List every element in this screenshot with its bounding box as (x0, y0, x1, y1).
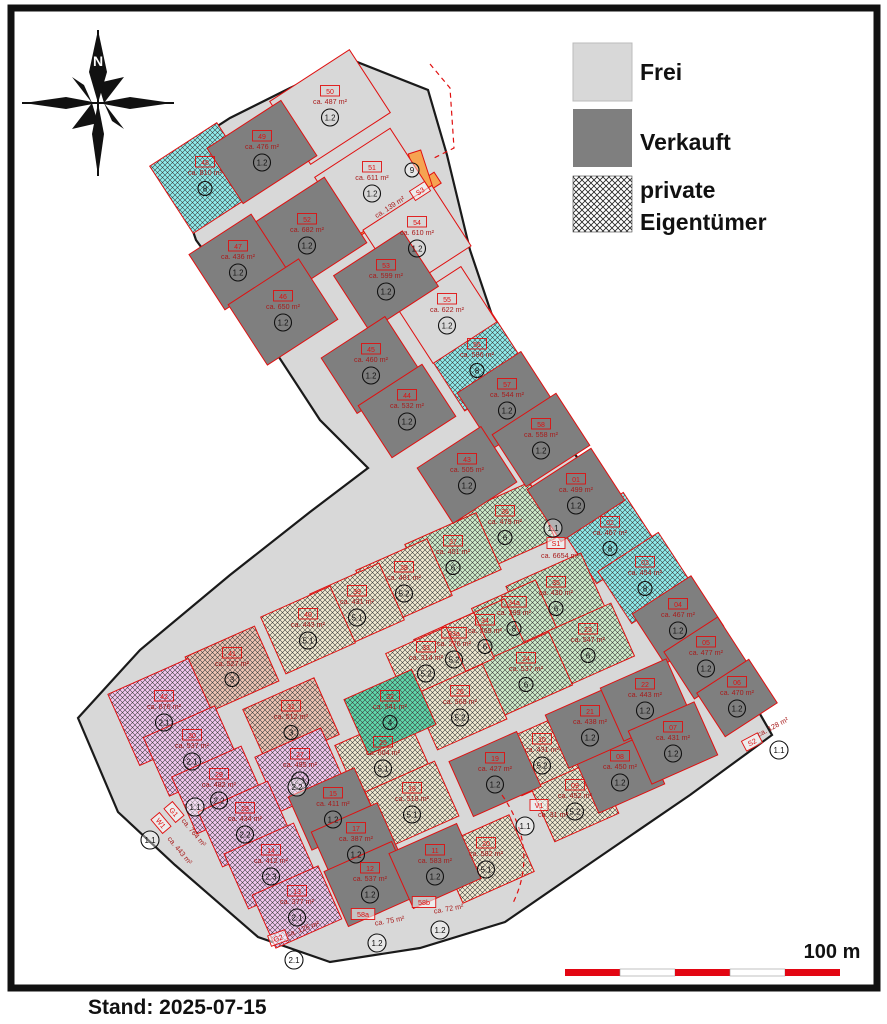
plot-number: 28 (241, 806, 249, 813)
plot-area: ca. 438 m² (573, 717, 608, 726)
zone-marker-2.2-6: 2.2 (288, 778, 306, 796)
plot-area: ca. 568 m² (443, 697, 478, 706)
plot-value: 2.1 (292, 913, 303, 922)
legend-frei-swatch (573, 43, 632, 101)
plot-value: 1.2 (328, 815, 339, 824)
plot-area: ca. 479 m² (488, 517, 523, 526)
plot-value: 1.2 (673, 626, 684, 635)
plot-number: 26 (456, 689, 464, 696)
plot-value: 5.1 (352, 613, 363, 622)
zone-marker-1.1-3: 1.1 (770, 741, 788, 759)
plot-area: ca. 537 m² (175, 741, 210, 750)
plot-number: 17 (352, 826, 360, 833)
plot-number: 33a (448, 631, 460, 638)
plot-area: ca. 682 m² (290, 225, 325, 234)
plot-area: ca. 431 m² (340, 597, 375, 606)
plot-area: ca. 610 m² (400, 228, 435, 237)
plot-number: 20 (482, 841, 490, 848)
plot-number: 58 (537, 422, 545, 429)
plot-value: 1.2 (640, 706, 651, 715)
legend-private-label-1: private (640, 177, 715, 203)
plot-value: 5.1 (481, 865, 492, 874)
plot-area: ca. 450 m² (603, 762, 638, 771)
plot-area: ca. 499 m² (559, 485, 594, 494)
plot-area: ca. 412 m² (254, 856, 289, 865)
plot-value: 6 (554, 604, 558, 613)
plot-value: 1.2 (462, 481, 473, 490)
plot-value: 1.2 (278, 318, 289, 327)
compass-north-label: N (93, 53, 103, 69)
zone-marker-value: 2.1 (288, 956, 300, 965)
zone-marker-1.2-8: 1.2 (368, 934, 386, 952)
plot-area: ca. 505 m² (450, 465, 485, 474)
special-label-id: 58a (357, 910, 369, 919)
plot-value: 1.2 (365, 890, 376, 899)
plot-area: ca. 876 m² (147, 702, 182, 711)
plot-value: 1.2 (615, 778, 626, 787)
legend: Frei Verkauft private Eigentümer (573, 43, 767, 235)
plot-value: 8 (203, 184, 207, 193)
plot-value: 2.2 (240, 830, 251, 839)
legend-verkauft-label: Verkauft (640, 129, 731, 155)
plot-area: ca. 583 m² (418, 856, 453, 865)
plot-number: 14 (267, 848, 275, 855)
plot-value: 5.2 (570, 807, 581, 816)
plot-value: 5.2 (537, 761, 548, 770)
plot-number: 42 (160, 694, 168, 701)
plot-value: 6 (483, 642, 487, 651)
plot-area: ca. 436 m² (221, 252, 256, 261)
plot-value: 5.1 (407, 810, 418, 819)
zone-marker-value: 1.1 (189, 803, 201, 812)
plot-area: ca. 460 m² (354, 355, 389, 364)
plot-area: ca. 476 m² (245, 142, 280, 151)
plot-number: 23 (584, 627, 592, 634)
scale-bar-segment-4 (785, 969, 840, 976)
plot-number: 22 (641, 682, 649, 689)
plot-value: 5.2 (399, 589, 410, 598)
plot-value: 1.2 (536, 446, 547, 455)
plot-value: 5.2 (421, 669, 432, 678)
plot-value: 1.2 (366, 371, 377, 380)
plot-area: ca. 611 m² (355, 173, 389, 182)
scale-bar-label: 100 m (804, 941, 861, 963)
plot-value: 1.2 (257, 158, 268, 167)
plot-value: 2.1 (159, 718, 170, 727)
plot-value: 5.2 (455, 713, 466, 722)
plot-value: 1.2 (701, 664, 712, 673)
compass-rose: N (22, 30, 174, 176)
compass-west-spike (24, 97, 98, 109)
special-label-id: 58b (418, 898, 430, 907)
plot-number: 10 (538, 737, 546, 744)
zone-marker-1.1-1: 1.1 (544, 519, 562, 537)
plot-area: ca. 622 m² (430, 305, 465, 314)
scale-bar: 100 m (565, 941, 860, 976)
plot-area: ca. 558 m² (524, 430, 559, 439)
plot-area: ca. 650 m² (266, 302, 301, 311)
plot-area: ca. 582 m² (469, 849, 504, 858)
plot-number: 12 (366, 866, 374, 873)
scale-bar-segment-0 (565, 969, 620, 976)
plot-value: 1.2 (430, 872, 441, 881)
plot-area: ca. 599 m² (369, 271, 404, 280)
plot-value: 1.2 (381, 287, 392, 296)
plot-value: 1.2 (571, 501, 582, 510)
plot-number: 57 (503, 382, 511, 389)
plot-value: 1.2 (233, 268, 244, 277)
plot-area: ca. 269 m² (468, 626, 503, 635)
plot-area: ca. 276 m² (437, 639, 472, 648)
plot-area: ca. 431 m² (525, 745, 560, 754)
scale-bar-segment-3 (730, 969, 785, 976)
plot-area: ca. 487 m² (313, 97, 348, 106)
plot-value: 8 (643, 584, 647, 593)
plot-number: 54 (413, 220, 421, 227)
plot-number: 11 (431, 848, 438, 855)
plot-value: 2.1 (187, 757, 198, 766)
plot-number: 34a (508, 600, 520, 607)
plot-number: 15 (329, 791, 337, 798)
plot-area: ca. 586 m² (460, 350, 495, 359)
plot-number: 45 (367, 347, 375, 354)
legend-private-swatch (573, 176, 632, 232)
plot-number: 35 (552, 580, 560, 587)
plot-number: 39 (353, 589, 361, 596)
plot-area: ca. 467 m² (661, 610, 696, 619)
legend-verkauft-swatch (573, 109, 632, 167)
plot-number: 46 (279, 294, 287, 301)
special-label-id: S1 (552, 539, 561, 548)
plot-area: ca. 314 m² (409, 653, 444, 662)
plot-value: 8 (475, 366, 479, 375)
plot-number: 38 (400, 565, 408, 572)
plot-value: 6 (451, 563, 455, 572)
plot-area: ca. 532 m² (390, 401, 425, 410)
plot-value: 4 (388, 718, 393, 727)
plot-area: ca. 431 m² (656, 733, 691, 742)
zone-marker-1.1-5: 1.1 (186, 798, 204, 816)
plot-area: ca. 377 m² (280, 897, 315, 906)
plot-area: ca. 430 m² (539, 588, 574, 597)
plot-number: 06 (733, 680, 741, 687)
plot-value: 1.2 (325, 113, 336, 122)
plot-area: ca. 470 m² (720, 688, 755, 697)
plot-value: 8 (608, 544, 612, 553)
plot-area: ca. 541 m² (373, 702, 408, 711)
plot-value: 5.2 (449, 655, 460, 664)
plot-number: 40 (304, 612, 312, 619)
plot-number: 04 (674, 602, 682, 609)
plot-area: ca. 467 m² (593, 528, 628, 537)
plot-number: 52 (303, 217, 311, 224)
plot-number: 37 (449, 539, 457, 546)
zone-marker-value: 1.1 (519, 822, 531, 831)
plot-area: ca. 434 m² (228, 814, 263, 823)
plot-number: 43 (463, 457, 471, 464)
plot-area: ca. 495 m² (283, 760, 318, 769)
zone-marker-2.1-7: 2.1 (285, 951, 303, 969)
plot-number: 48 (201, 160, 209, 167)
plot-value: 3 (289, 728, 293, 737)
legend-private-label-2: Eigentümer (640, 209, 767, 235)
zone-marker-value: 1.1 (144, 836, 156, 845)
plot-area: ca. 451 m² (436, 547, 471, 556)
plot-number: 56 (473, 342, 481, 349)
compass-east-spike (98, 97, 172, 109)
plot-number: 36 (501, 509, 509, 516)
plot-area: ca. 477 m² (689, 648, 724, 657)
plot-number: 07 (669, 725, 677, 732)
plot-area: ca. 604 m² (366, 748, 401, 757)
plot-area: ca. 481 m² (387, 573, 422, 582)
plot-area: ca. 537 m² (509, 664, 544, 673)
plot-value: 8 (512, 624, 516, 633)
plot-value: 1.2 (402, 417, 413, 426)
zone-marker-value: 1.2 (371, 939, 383, 948)
plot-number: 27 (296, 752, 304, 759)
special-label-area: ca. 31 m² (538, 810, 569, 819)
plot-area: ca. 427 m² (478, 764, 513, 773)
zone-marker-value: 2.2 (291, 783, 303, 792)
plot-area: ca. 411 m² (316, 799, 350, 808)
plot-number: 33 (422, 645, 430, 652)
plot-number: 08 (616, 754, 624, 761)
plot-value: 2.3 (266, 872, 277, 881)
legend-frei-label: Frei (640, 59, 682, 85)
plot-value: 1.2 (585, 733, 596, 742)
scale-bar-segment-2 (675, 969, 730, 976)
zone-marker-value: 1.1 (773, 746, 785, 755)
site-plan-svg: 48ca. 810 m²856ca. 586 m²802ca. 467 m²80… (0, 0, 887, 1024)
plot-value: 1.2 (442, 321, 453, 330)
plot-value: 3 (230, 675, 234, 684)
plot-number: 02 (606, 520, 614, 527)
zone-marker-1.1-4: 1.1 (141, 831, 159, 849)
plot-area: ca. 544 m² (490, 390, 525, 399)
plot-number: 32 (386, 694, 394, 701)
zone-marker-1.1-2: 1.1 (516, 817, 534, 835)
plot-value: 5.1 (378, 764, 389, 773)
plot-value: 1.2 (412, 244, 423, 253)
plot-value: 1.2 (351, 850, 362, 859)
plot-number: 31 (287, 704, 295, 711)
plot-number: 50 (326, 89, 334, 96)
plot-number: 44 (403, 393, 411, 400)
plot-number: 05 (702, 640, 710, 647)
plot-number: 25 (379, 740, 387, 747)
caption-stand-date: Stand: 2025-07-15 (88, 996, 267, 1019)
plot-number: 49 (258, 134, 266, 141)
plot-area: ca. 518 m² (395, 794, 430, 803)
plot-number: 41 (228, 651, 236, 658)
plot-number: 55 (443, 297, 451, 304)
plot-area: ca. 810 m² (188, 168, 223, 177)
zone-marker-9-0: 9 (405, 163, 419, 177)
plot-area: ca. 547 m² (571, 635, 606, 644)
plot-number: 01 (572, 477, 580, 484)
plot-area: ca. 452 m² (558, 791, 593, 800)
plot-number: 03 (641, 560, 649, 567)
plot-area: ca. 482 m² (202, 780, 237, 789)
plot-value: 1.2 (367, 189, 378, 198)
plot-number: 18 (408, 786, 416, 793)
plot-value: 1.2 (732, 704, 743, 713)
plot-number: 34 (481, 618, 489, 625)
plot-value: 2.2 (214, 796, 225, 805)
plot-number: 53 (382, 263, 390, 270)
plot-value: 1.2 (302, 241, 313, 250)
plot-value: 1.2 (668, 749, 679, 758)
plot-value: 6 (503, 533, 507, 542)
plot-area: ca. 387 m² (339, 834, 374, 843)
plot-area: ca. 537 m² (353, 874, 388, 883)
plot-area: ca. 454 m² (628, 568, 663, 577)
plot-number: 47 (234, 244, 242, 251)
site-plan-page: 48ca. 810 m²856ca. 586 m²802ca. 467 m²80… (0, 0, 887, 1024)
plot-area: ca. 443 m² (291, 620, 326, 629)
plot-number: 21 (586, 709, 594, 716)
plot-number: 09 (571, 783, 579, 790)
plot-value: 1.2 (490, 780, 501, 789)
scale-bar-segment-1 (620, 969, 675, 976)
zone-marker-value: 1.2 (434, 926, 446, 935)
plot-number: 29 (215, 772, 223, 779)
zone-marker-1.2-9: 1.2 (431, 921, 449, 939)
plot-area: ca. 443 m² (628, 690, 663, 699)
special-label-id: V1 (535, 801, 544, 810)
plot-area: ca. 299 m² (497, 608, 532, 617)
plot-value: 6 (524, 680, 528, 689)
plot-number: 51 (368, 165, 376, 172)
plot-value: 1.2 (502, 406, 513, 415)
plot-area: ca. 527 m² (215, 659, 250, 668)
plot-area: ca. 512 m² (274, 712, 309, 721)
plot-value: 5.1 (303, 636, 314, 645)
plot-number: 13 (293, 889, 301, 896)
plot-number: 30 (188, 733, 196, 740)
plot-number: 19 (491, 756, 499, 763)
plot-value: 6 (586, 651, 590, 660)
zone-marker-value: 1.1 (547, 524, 559, 533)
zone-marker-value: 9 (410, 166, 415, 175)
plot-number: 24 (522, 656, 530, 663)
special-label-area: ca. 6654 m² (541, 551, 580, 560)
